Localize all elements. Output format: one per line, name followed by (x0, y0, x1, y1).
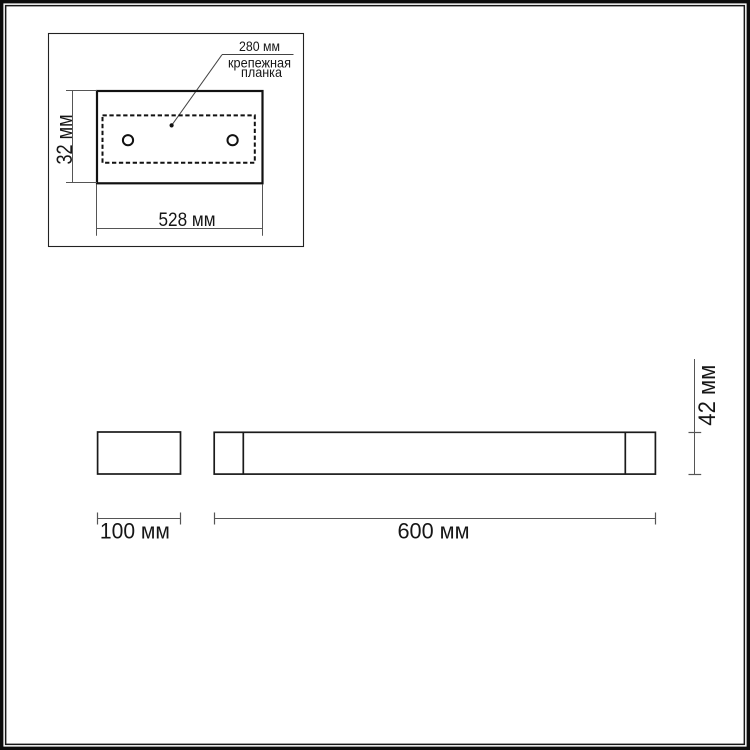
svg-text:600 мм: 600 мм (398, 519, 470, 544)
svg-text:32 мм: 32 мм (52, 115, 77, 165)
svg-text:280 мм: 280 мм (239, 38, 280, 54)
svg-text:528 мм: 528 мм (159, 209, 216, 231)
svg-text:100 мм: 100 мм (100, 519, 170, 544)
svg-text:42 мм: 42 мм (694, 365, 721, 426)
svg-text:планка: планка (241, 64, 282, 80)
